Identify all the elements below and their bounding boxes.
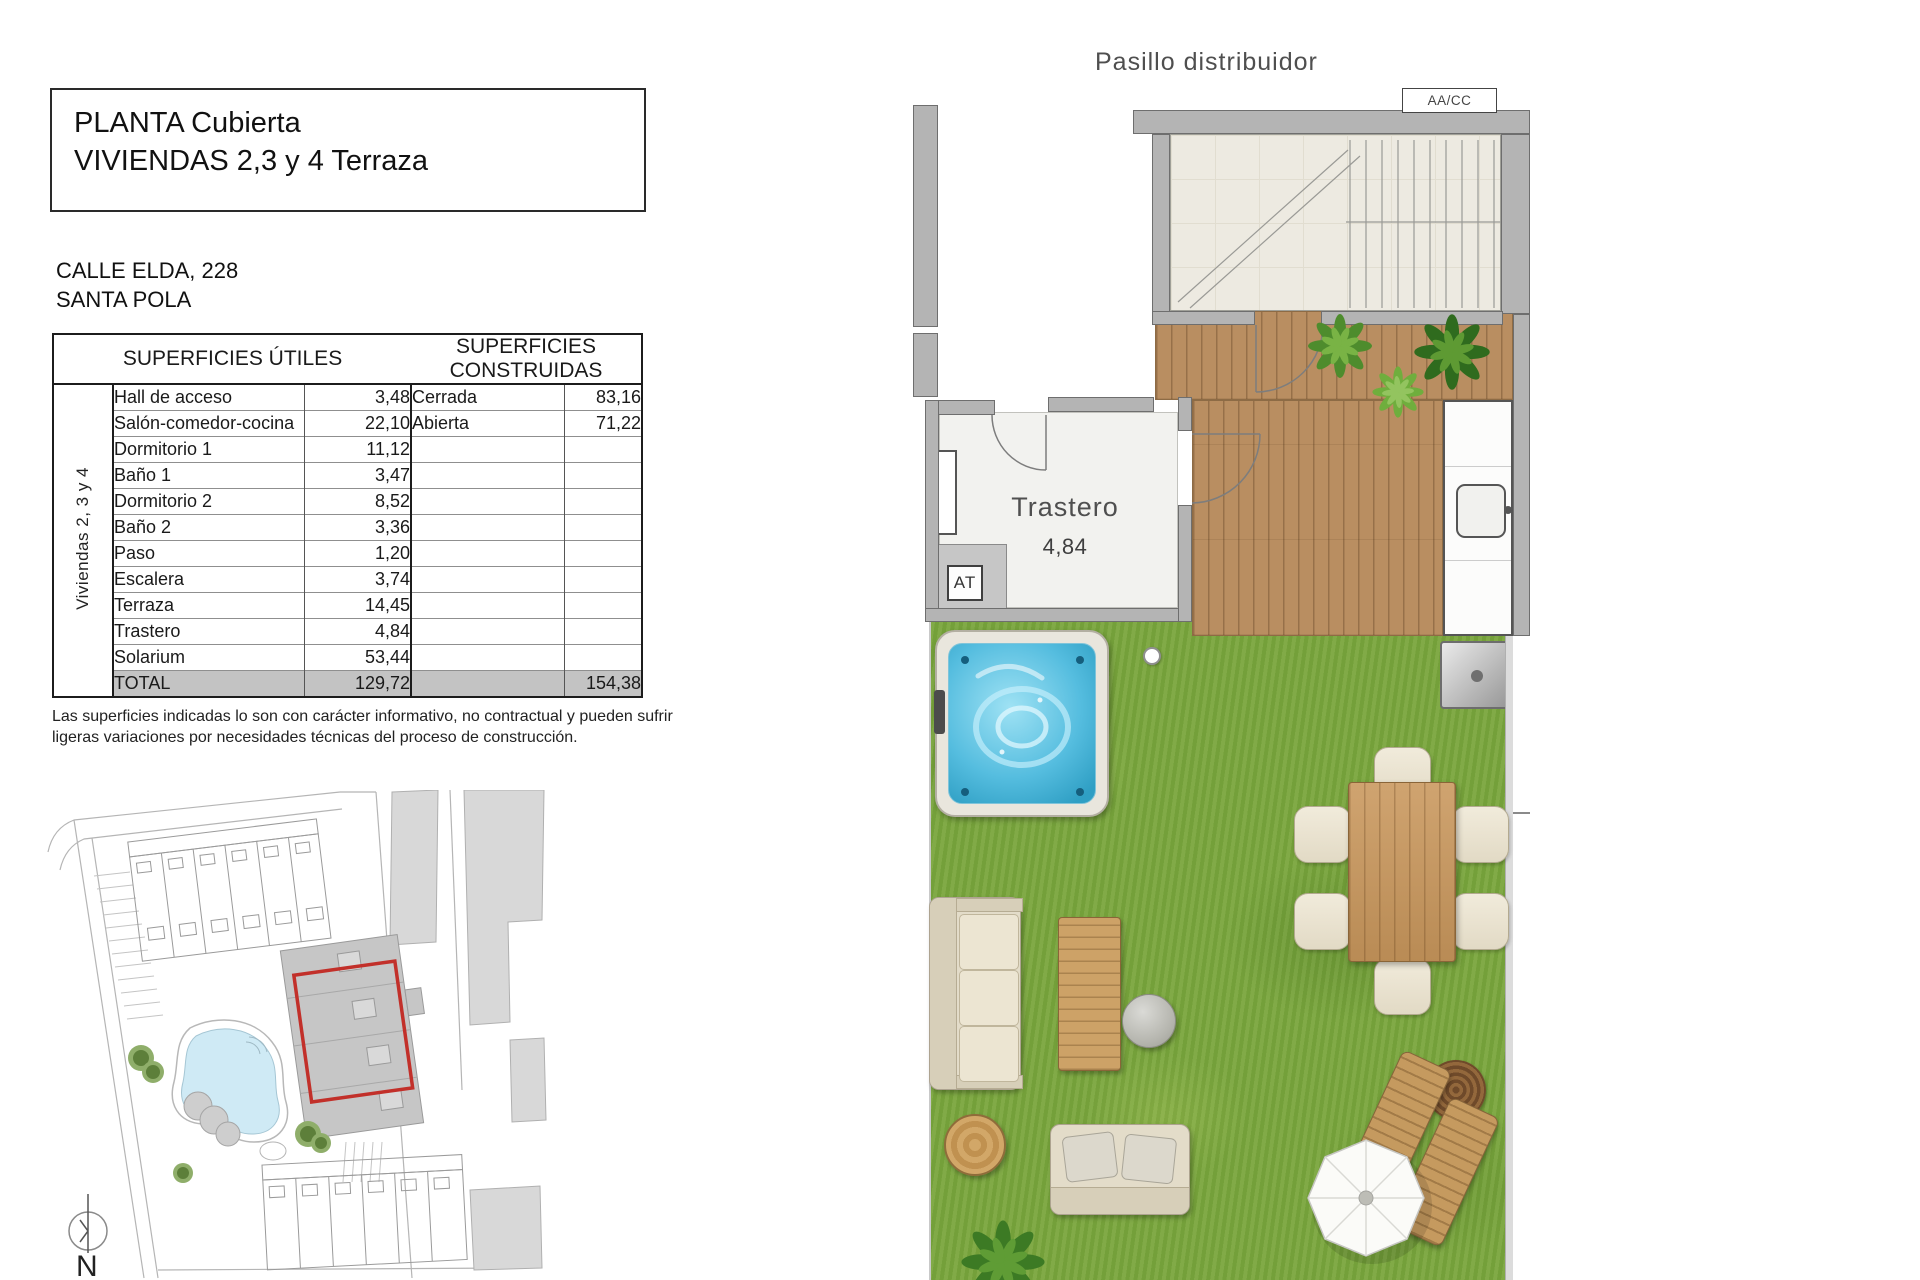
row-cvalue — [564, 541, 642, 567]
row-name: Trastero — [113, 619, 304, 645]
wall — [1048, 397, 1154, 412]
row-cname — [411, 515, 564, 541]
row-value: 53,44 — [304, 645, 411, 671]
houses-bottom-row — [262, 1155, 467, 1270]
row-cvalue: 71,22 — [564, 411, 642, 437]
address-line-1: CALLE ELDA, 228 — [56, 256, 238, 285]
table-row: Paso1,20 — [53, 541, 642, 567]
dining-chair — [1294, 806, 1351, 863]
table-row: Baño 23,36 — [53, 515, 642, 541]
table-row: Terraza14,45 — [53, 593, 642, 619]
wall — [1501, 134, 1530, 314]
row-cvalue — [564, 567, 642, 593]
row-cname: Cerrada — [411, 384, 564, 411]
counter-line — [1445, 560, 1511, 561]
wall — [1178, 505, 1192, 622]
row-name: Baño 1 — [113, 463, 304, 489]
dimension-tick — [1513, 812, 1530, 814]
dining-table — [1348, 782, 1456, 962]
areas-table: SUPERFICIES ÚTILES SUPERFICIES CONSTRUID… — [52, 333, 643, 698]
row-name: Hall de acceso — [113, 384, 304, 411]
sofa-back — [930, 898, 957, 1089]
trastero-area-label: 4,84 — [985, 534, 1145, 560]
table-row: Solarium53,44 — [53, 645, 642, 671]
dining-chair — [1452, 893, 1509, 950]
row-value: 11,12 — [304, 437, 411, 463]
at-label: AT — [954, 573, 976, 593]
row-value: 4,84 — [304, 619, 411, 645]
loveseat — [1050, 1124, 1190, 1215]
wall — [1321, 311, 1503, 325]
at-unit: AT — [947, 565, 983, 601]
row-cname — [411, 593, 564, 619]
dining-chair — [1374, 958, 1431, 1015]
row-cvalue — [564, 619, 642, 645]
site-boundary — [48, 790, 510, 1278]
title-box: PLANTA Cubierta VIVIENDAS 2,3 y 4 Terraz… — [50, 88, 646, 212]
total-cvalue: 154,38 — [564, 671, 642, 698]
row-value: 3,36 — [304, 515, 411, 541]
site-plan: N — [40, 790, 640, 1280]
row-name: Salón-comedor-cocina — [113, 411, 304, 437]
dining-chair — [1452, 806, 1509, 863]
row-name: Terraza — [113, 593, 304, 619]
row-cvalue — [564, 593, 642, 619]
garden-light — [1143, 647, 1161, 665]
table-row: Dormitorio 111,12 — [53, 437, 642, 463]
table-row: Salón-comedor-cocina22,10Abierta71,22 — [53, 411, 642, 437]
address-line-2: SANTA POLA — [56, 285, 238, 314]
kitchen-counter — [1443, 400, 1513, 636]
sink — [1456, 484, 1506, 538]
row-name: Dormitorio 1 — [113, 437, 304, 463]
trastero-label: Trastero — [985, 492, 1145, 523]
wall — [925, 608, 1192, 622]
row-value: 1,20 — [304, 541, 411, 567]
row-value: 3,48 — [304, 384, 411, 411]
group-label-cell: Viviendas 2, 3 y 4 — [53, 384, 113, 697]
north-compass: N — [69, 1194, 107, 1280]
wall — [913, 105, 938, 327]
aacc-unit: AA/CC — [1402, 88, 1497, 113]
wood-deck-mid — [1192, 400, 1443, 636]
row-cname: Abierta — [411, 411, 564, 437]
row-name: Paso — [113, 541, 304, 567]
slat-coffee-table — [1058, 917, 1121, 1071]
jacuzzi — [935, 630, 1109, 817]
table-row: Dormitorio 28,52 — [53, 489, 642, 515]
total-label: TOTAL — [113, 671, 304, 698]
title-line-2: VIVIENDAS 2,3 y 4 Terraza — [74, 142, 644, 180]
wall — [913, 333, 938, 397]
row-value: 22,10 — [304, 411, 411, 437]
row-value: 14,45 — [304, 593, 411, 619]
row-value: 3,74 — [304, 567, 411, 593]
row-cname — [411, 463, 564, 489]
wall — [1513, 314, 1530, 636]
subject-building — [280, 932, 439, 1139]
north-label: N — [76, 1250, 98, 1280]
pillow — [1061, 1131, 1118, 1183]
header-construidas: SUPERFICIES CONSTRUIDAS — [411, 334, 642, 384]
corridor-label: Pasillo distribuidor — [1095, 48, 1318, 77]
counter-line — [1445, 466, 1511, 467]
aacc-label: AA/CC — [1428, 93, 1472, 108]
disclaimer-line-2: ligeras variaciones por necesidades técn… — [52, 727, 673, 748]
loveseat-back — [1051, 1187, 1189, 1214]
wall — [1178, 397, 1192, 431]
neighbor-buildings — [390, 790, 546, 1270]
dining-chair — [1294, 893, 1351, 950]
row-value: 3,47 — [304, 463, 411, 489]
jacuzzi-water — [948, 643, 1096, 804]
wall — [1152, 134, 1170, 313]
row-cname — [411, 645, 564, 671]
row-name: Solarium — [113, 645, 304, 671]
table-row: Baño 13,47 — [53, 463, 642, 489]
disclaimer: Las superficies indicadas lo son con car… — [52, 706, 673, 748]
outdoor-shower — [1440, 641, 1512, 709]
row-value: 8,52 — [304, 489, 411, 515]
row-cvalue — [564, 437, 642, 463]
row-cname — [411, 437, 564, 463]
row-cname — [411, 489, 564, 515]
wall — [1133, 110, 1530, 134]
stone-side-table — [1122, 994, 1176, 1048]
row-cvalue: 83,16 — [564, 384, 642, 411]
title-line-1: PLANTA Cubierta — [74, 104, 644, 142]
row-cvalue — [564, 515, 642, 541]
table-header-row: SUPERFICIES ÚTILES SUPERFICIES CONSTRUID… — [53, 334, 642, 384]
table-row: Escalera3,74 — [53, 567, 642, 593]
wall — [925, 400, 939, 621]
row-cvalue — [564, 645, 642, 671]
total-value: 129,72 — [304, 671, 411, 698]
areas-table-wrap: SUPERFICIES ÚTILES SUPERFICIES CONSTRUID… — [52, 333, 641, 695]
address: CALLE ELDA, 228 SANTA POLA — [56, 256, 238, 314]
sofa-cushion — [959, 914, 1019, 970]
houses-top-row — [128, 819, 331, 961]
total-cname — [411, 671, 564, 698]
plan-sheet: PLANTA Cubierta VIVIENDAS 2,3 y 4 Terraz… — [0, 0, 1920, 1280]
jacuzzi-control-panel — [934, 690, 945, 734]
row-cname — [411, 541, 564, 567]
sofa-cushion — [959, 1026, 1019, 1082]
pillow — [1121, 1133, 1178, 1184]
row-name: Baño 2 — [113, 515, 304, 541]
table-total-row: TOTAL 129,72 154,38 — [53, 671, 642, 698]
group-label: Viviendas 2, 3 y 4 — [73, 467, 93, 610]
table-row: Trastero4,84 — [53, 619, 642, 645]
round-wood-table — [944, 1114, 1006, 1176]
sofa-cushion — [959, 970, 1019, 1026]
grass-right-edge — [1505, 636, 1513, 1280]
sofa — [929, 897, 1021, 1090]
row-name: Escalera — [113, 567, 304, 593]
row-name: Dormitorio 2 — [113, 489, 304, 515]
table-row: Viviendas 2, 3 y 4 Hall de acceso 3,48 C… — [53, 384, 642, 411]
header-utiles: SUPERFICIES ÚTILES — [53, 334, 411, 384]
row-cname — [411, 567, 564, 593]
wall — [1152, 311, 1255, 325]
row-cname — [411, 619, 564, 645]
row-cvalue — [564, 489, 642, 515]
sofa-arm — [956, 898, 1023, 912]
disclaimer-line-1: Las superficies indicadas lo son con car… — [52, 706, 673, 727]
row-cvalue — [564, 463, 642, 489]
stair-room — [1170, 134, 1501, 311]
